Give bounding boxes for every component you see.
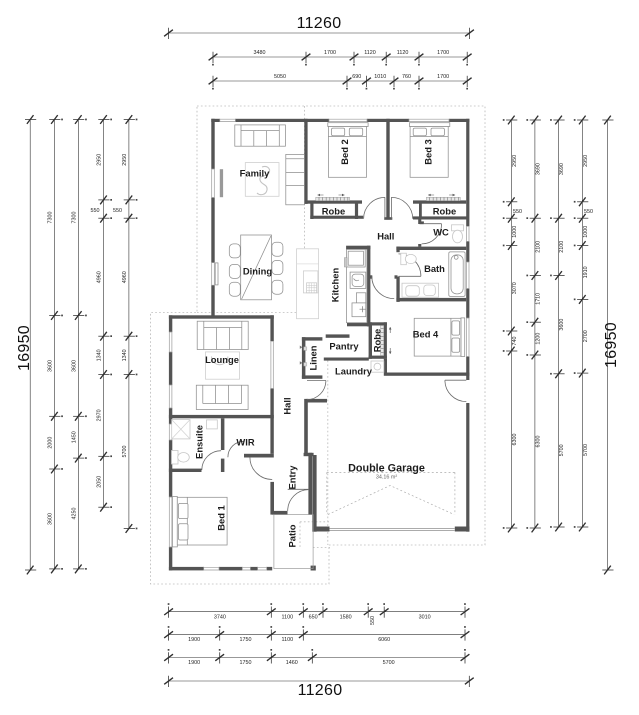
svg-text:760: 760 [402, 74, 411, 80]
svg-text:7300: 7300 [71, 212, 77, 224]
svg-text:Dining: Dining [243, 266, 272, 277]
svg-text:4250: 4250 [71, 508, 77, 520]
svg-text:2050: 2050 [97, 476, 103, 488]
svg-text:1580: 1580 [340, 614, 352, 620]
svg-text:3600: 3600 [71, 360, 77, 372]
svg-text:Bed 3: Bed 3 [423, 139, 434, 165]
svg-text:1200: 1200 [535, 333, 541, 345]
svg-text:2950: 2950 [512, 155, 518, 167]
svg-text:1750: 1750 [240, 660, 252, 666]
svg-text:2100: 2100 [535, 241, 541, 253]
svg-text:3690: 3690 [535, 163, 541, 175]
svg-text:2950: 2950 [583, 155, 589, 167]
svg-text:Linen: Linen [307, 345, 318, 370]
svg-text:Laundry: Laundry [335, 366, 373, 377]
svg-text:Family: Family [240, 168, 270, 179]
svg-text:6300: 6300 [512, 434, 518, 446]
svg-text:1120: 1120 [397, 50, 409, 56]
svg-text:3600: 3600 [47, 360, 53, 372]
svg-text:6060: 6060 [378, 637, 390, 643]
svg-text:16950: 16950 [16, 325, 33, 371]
svg-text:3070: 3070 [512, 282, 518, 294]
svg-text:550: 550 [370, 616, 376, 625]
svg-text:1100: 1100 [282, 637, 294, 643]
svg-text:Hall: Hall [281, 397, 292, 414]
svg-text:5700: 5700 [559, 444, 565, 456]
svg-text:2700: 2700 [583, 330, 589, 342]
svg-text:Bed 2: Bed 2 [339, 139, 350, 165]
svg-text:1710: 1710 [535, 293, 541, 305]
svg-text:5700: 5700 [122, 446, 128, 458]
svg-text:1700: 1700 [324, 50, 336, 56]
svg-text:Hall: Hall [377, 231, 394, 242]
svg-text:Bath: Bath [424, 263, 445, 274]
svg-text:1100: 1100 [282, 614, 294, 620]
svg-text:1700: 1700 [437, 74, 449, 80]
svg-text:3600: 3600 [559, 319, 565, 331]
svg-text:1700: 1700 [437, 50, 449, 56]
svg-text:1010: 1010 [374, 74, 386, 80]
svg-text:1000: 1000 [512, 226, 518, 238]
svg-text:550: 550 [113, 208, 122, 214]
svg-text:Robe: Robe [371, 329, 382, 352]
svg-text:1340: 1340 [122, 349, 128, 361]
svg-text:11260: 11260 [297, 15, 342, 32]
svg-text:2950: 2950 [122, 154, 128, 166]
svg-text:2950: 2950 [97, 154, 103, 166]
svg-text:550: 550 [584, 209, 593, 215]
svg-text:1120: 1120 [364, 50, 376, 56]
svg-text:1460: 1460 [286, 660, 298, 666]
svg-text:4960: 4960 [122, 271, 128, 283]
svg-text:Entry: Entry [286, 465, 297, 490]
svg-text:1750: 1750 [240, 637, 252, 643]
svg-text:Patio: Patio [286, 524, 297, 547]
svg-text:1340: 1340 [97, 349, 103, 361]
svg-text:2970: 2970 [97, 409, 103, 421]
svg-text:1450: 1450 [71, 431, 77, 443]
svg-text:690: 690 [352, 74, 361, 80]
svg-text:2100: 2100 [559, 241, 565, 253]
svg-text:1000: 1000 [583, 226, 589, 238]
svg-text:Robe: Robe [433, 206, 456, 217]
svg-text:1910: 1910 [583, 266, 589, 278]
svg-text:5050: 5050 [274, 74, 286, 80]
svg-text:3600: 3600 [47, 513, 53, 525]
svg-text:1900: 1900 [188, 637, 200, 643]
svg-text:Pantry: Pantry [329, 341, 359, 352]
svg-text:6300: 6300 [535, 436, 541, 448]
svg-text:Robe: Robe [322, 206, 345, 217]
svg-text:34.16 m²: 34.16 m² [376, 475, 397, 481]
svg-text:Bed 4: Bed 4 [413, 329, 439, 340]
svg-text:4960: 4960 [97, 271, 103, 283]
svg-text:5700: 5700 [583, 444, 589, 456]
svg-text:5700: 5700 [383, 660, 395, 666]
svg-text:740: 740 [512, 337, 518, 346]
svg-text:16950: 16950 [603, 322, 620, 368]
svg-text:3010: 3010 [419, 614, 431, 620]
svg-text:550: 550 [91, 208, 100, 214]
svg-text:WC: WC [433, 227, 449, 238]
svg-text:WIR: WIR [236, 437, 254, 448]
svg-text:Bed 1: Bed 1 [215, 505, 226, 531]
svg-text:3690: 3690 [559, 163, 565, 175]
svg-text:3480: 3480 [254, 50, 266, 56]
svg-text:650: 650 [309, 614, 318, 620]
svg-text:7300: 7300 [47, 212, 53, 224]
svg-text:550: 550 [513, 209, 522, 215]
svg-text:2000: 2000 [47, 437, 53, 449]
svg-text:Double Garage: Double Garage [348, 463, 425, 475]
svg-text:Ensuite: Ensuite [194, 425, 205, 459]
svg-text:1900: 1900 [188, 660, 200, 666]
svg-text:Lounge: Lounge [205, 354, 239, 365]
svg-text:Kitchen: Kitchen [330, 268, 341, 303]
svg-text:11260: 11260 [298, 682, 343, 699]
svg-text:3740: 3740 [214, 614, 226, 620]
